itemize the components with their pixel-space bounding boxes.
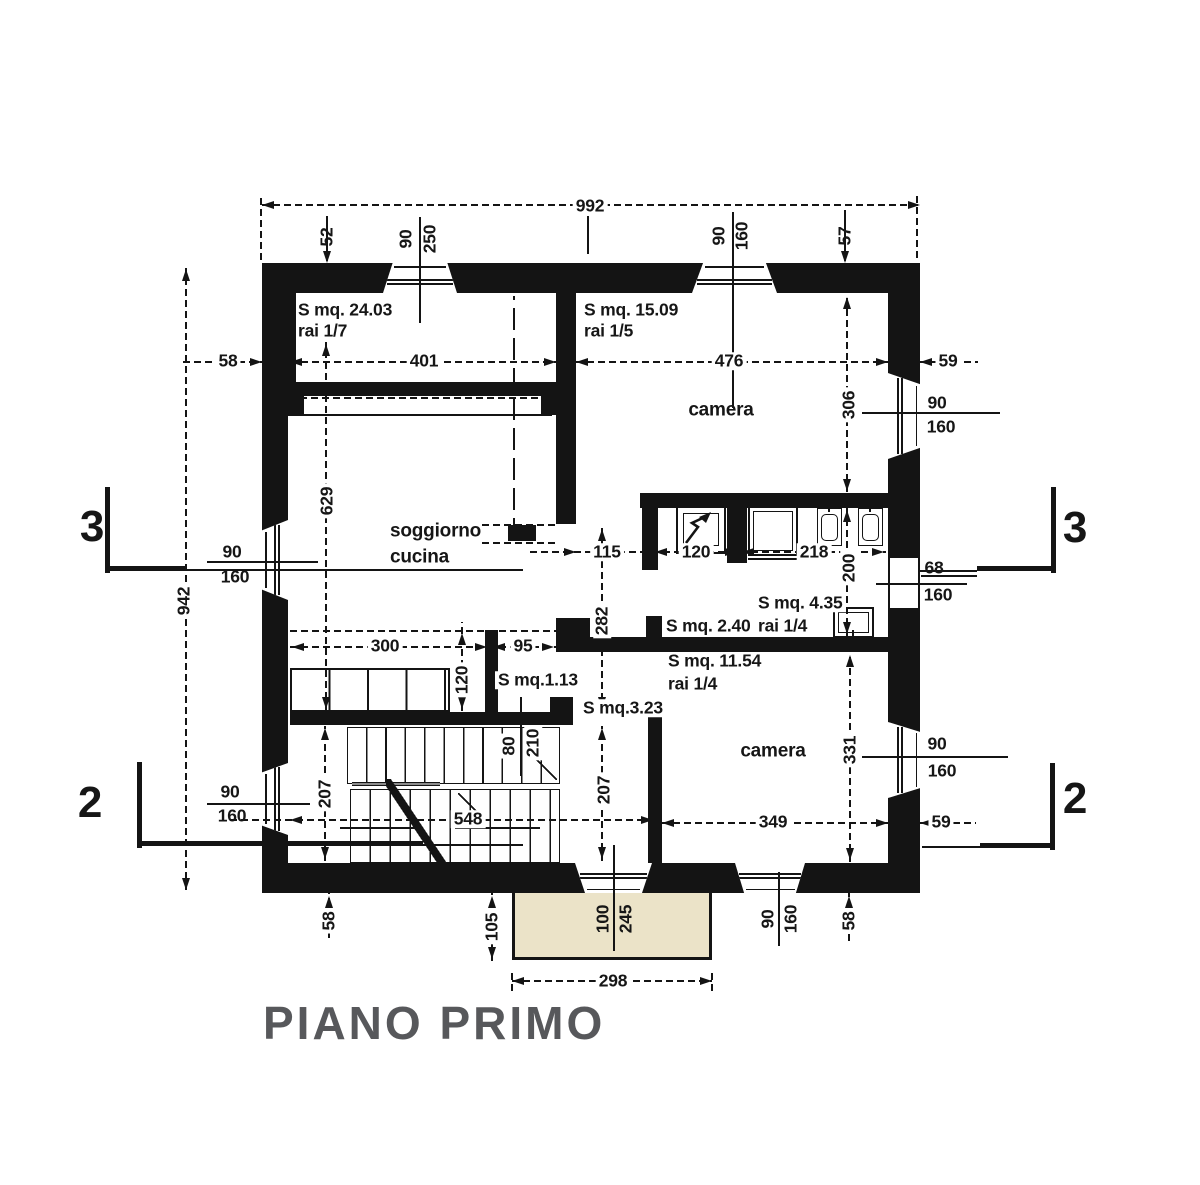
dimension-label: 59 (928, 813, 953, 831)
dimension-label: 59 (935, 352, 960, 370)
line (105, 487, 110, 573)
stairs-break-line (386, 779, 446, 869)
line (922, 846, 980, 848)
area-label: S mq.3.23 (580, 699, 666, 717)
dimension-label: 942 (175, 584, 193, 619)
line (207, 561, 318, 563)
wall (648, 708, 662, 865)
dim-arrow-r (872, 548, 884, 556)
dimension-label: 629 (318, 484, 336, 519)
dimension-label: 207 (595, 773, 613, 808)
dimension-label: 58 (215, 352, 240, 370)
dimension-label: 120 (679, 543, 714, 561)
wall (290, 712, 552, 725)
dimension-label: 3 (80, 505, 104, 549)
dimension-label: 80 (500, 733, 518, 758)
dim-arrow-l (643, 548, 655, 556)
line (862, 412, 1000, 414)
line (137, 762, 142, 848)
dimension-label: 57 (836, 226, 854, 245)
dim-arrow-u (846, 655, 854, 667)
dim-arrow-u (843, 297, 851, 309)
dimension-label: 2 (78, 781, 102, 825)
dimension-label: 95 (510, 637, 535, 655)
line (862, 756, 1008, 758)
dim-arrow-d (843, 622, 851, 634)
dim-arrow-l (655, 548, 667, 556)
dim-arrow-l (662, 819, 674, 827)
dimension-label: 207 (316, 777, 334, 812)
dim-arrow-l (920, 358, 932, 366)
window-opening (692, 263, 777, 293)
dim-arrow-r (876, 358, 888, 366)
dimension-label: 218 (797, 543, 832, 561)
fixture-outline (821, 514, 838, 541)
dimension-label: 52 (318, 227, 336, 246)
dim-arrow-u (182, 269, 190, 281)
dim-arrow-l (576, 358, 588, 366)
dim-arrow-r (475, 643, 487, 651)
line (980, 843, 1052, 848)
dimension-label: 245 (617, 905, 635, 934)
wall (556, 293, 576, 524)
fixture-outline (862, 514, 879, 541)
dimension-label: 3 (1063, 506, 1087, 550)
room-label: cucina (390, 548, 449, 567)
dim-arrow-l (290, 816, 302, 824)
window-opening (735, 863, 805, 893)
dim-arrow-d (321, 847, 329, 859)
dimension-label: 401 (407, 352, 442, 370)
line (852, 630, 854, 651)
dim-arrow-r (700, 977, 712, 985)
dim-arrow-d (598, 847, 606, 859)
dim-arrow-l (292, 643, 304, 651)
dim-arrow-u (321, 728, 329, 740)
dimension-label: 115 (590, 543, 624, 561)
dim-arrow-r (544, 358, 556, 366)
window-opening (262, 520, 288, 600)
dimension-label: 90 (222, 543, 241, 561)
dimension-label: 282 (593, 604, 611, 639)
dim-arrow-u (488, 896, 496, 908)
wall (508, 525, 536, 541)
line (340, 827, 420, 829)
dimension-label: 90 (927, 394, 946, 412)
dimension-label: 90 (710, 226, 728, 245)
line (300, 397, 545, 399)
dimension-label: 160 (221, 568, 250, 586)
wall (646, 616, 662, 638)
room-label: soggiorno (390, 522, 481, 541)
dimension-label: 476 (712, 352, 747, 370)
line (876, 583, 967, 585)
dimension-label: 250 (421, 225, 439, 254)
dim-arrow-d (843, 479, 851, 491)
line (828, 496, 830, 512)
dim-arrow-u (598, 728, 606, 740)
plan-title: PIANO PRIMO (263, 996, 605, 1050)
dim-arrow-r (908, 201, 920, 209)
wall (550, 697, 573, 725)
area-label: S mq.1.13 (495, 671, 581, 689)
dimension-label: 200 (840, 551, 858, 586)
stairs-direction-tick (535, 758, 557, 780)
dimension-label: 90 (759, 909, 777, 928)
line (185, 268, 187, 890)
dimension-label: 160 (928, 762, 957, 780)
dim-arrow-l (742, 548, 754, 556)
dimension-label: 160 (927, 418, 956, 436)
area-label: rai 1/4 (668, 675, 717, 693)
dimension-label: 105 (483, 910, 501, 945)
dim-arrow-d (458, 697, 466, 709)
dim-arrow-u (322, 344, 330, 356)
dim-arrow-u (458, 633, 466, 645)
dimension-label: 548 (451, 810, 486, 828)
line (513, 296, 515, 540)
dim-arrow-l (512, 977, 524, 985)
dim-arrow-u (598, 529, 606, 541)
room-label: camera (688, 401, 753, 420)
dimension-label: 331 (841, 733, 859, 768)
dim-arrow-u (843, 510, 851, 522)
dimension-label: 160 (733, 222, 751, 251)
line (139, 841, 423, 846)
window-opening (888, 373, 920, 459)
area-label: rai 1/4 (755, 617, 810, 635)
dimension-label: 210 (524, 726, 542, 761)
line (1050, 763, 1055, 850)
dim-arrow-u (845, 896, 853, 908)
dim-arrow-r (250, 358, 262, 366)
dimension-label: 306 (840, 388, 858, 423)
kitchen-counter (290, 668, 450, 712)
window-opening (888, 722, 920, 798)
dimension-label: 2 (1063, 777, 1087, 821)
area-label: S mq. 15.09 (584, 301, 678, 319)
dim-arrow-r (725, 548, 737, 556)
area-label: S mq. 24.03 (298, 301, 392, 319)
dim-arrow-l (493, 643, 505, 651)
dimension-label: 100 (594, 905, 612, 934)
dim-arrow-r (641, 816, 653, 824)
wall (300, 382, 543, 396)
line (107, 566, 185, 571)
line (748, 558, 797, 560)
floor-plan: 992529025090160575840147659S mq. 24.03ra… (0, 0, 1200, 1185)
window-opening (262, 763, 288, 835)
line (1051, 487, 1056, 573)
line (613, 845, 615, 951)
wall (642, 493, 658, 570)
area-label: S mq. 4.35 (755, 594, 846, 612)
dim-arrow-r (876, 819, 888, 827)
fixture-outline (753, 511, 793, 551)
area-label: rai 1/7 (298, 322, 347, 340)
dimension-label: 349 (756, 813, 791, 831)
line (290, 630, 556, 632)
dimension-label: 58 (840, 908, 858, 933)
dimension-label: 58 (320, 908, 338, 933)
dim-arrow-d (182, 878, 190, 890)
line (482, 524, 556, 526)
area-label: S mq. 11.54 (668, 652, 761, 670)
dim-arrow-d (488, 947, 496, 959)
dim-arrow-r (564, 548, 576, 556)
line (423, 844, 523, 846)
dimension-label: 90 (220, 783, 239, 801)
dimension-label: 160 (218, 807, 247, 825)
dimension-label: 68 (924, 559, 943, 577)
area-label: S mq. 2.40 (663, 617, 754, 635)
dim-arrow-d (323, 251, 331, 263)
dim-arrow-d (322, 697, 330, 709)
dim-arrow-d (841, 251, 849, 263)
dim-arrow-l (262, 201, 274, 209)
dimension-label: 160 (924, 586, 953, 604)
line (977, 566, 1053, 571)
line (482, 542, 556, 544)
dimension-label: 90 (397, 229, 415, 248)
dimension-label: 120 (453, 663, 471, 698)
dim-arrow-l (290, 358, 302, 366)
dimension-label: 992 (573, 197, 608, 215)
dim-arrow-u (325, 896, 333, 908)
line (587, 216, 589, 254)
dimension-label: 160 (782, 905, 800, 934)
area-label: rai 1/5 (584, 322, 633, 340)
dimension-label: 300 (368, 637, 403, 655)
dimension-label: 298 (596, 972, 631, 990)
dim-arrow-d (846, 848, 854, 860)
dim-arrow-r (542, 643, 554, 651)
room-label: camera (740, 742, 805, 761)
line (869, 496, 871, 512)
dimension-label: 90 (927, 735, 946, 753)
wall (262, 263, 920, 293)
